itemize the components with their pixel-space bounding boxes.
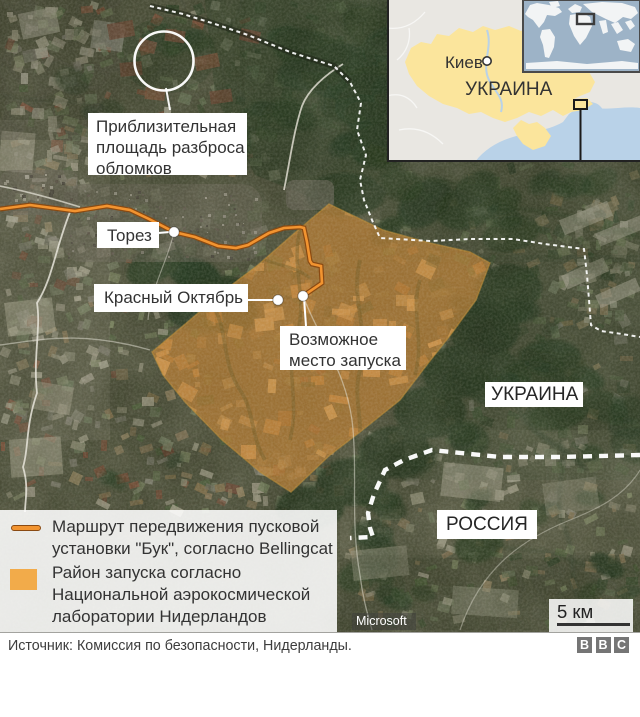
svg-text:УКРАИНА: УКРАИНА [465,79,553,100]
svg-text:Киев: Киев [445,53,483,72]
